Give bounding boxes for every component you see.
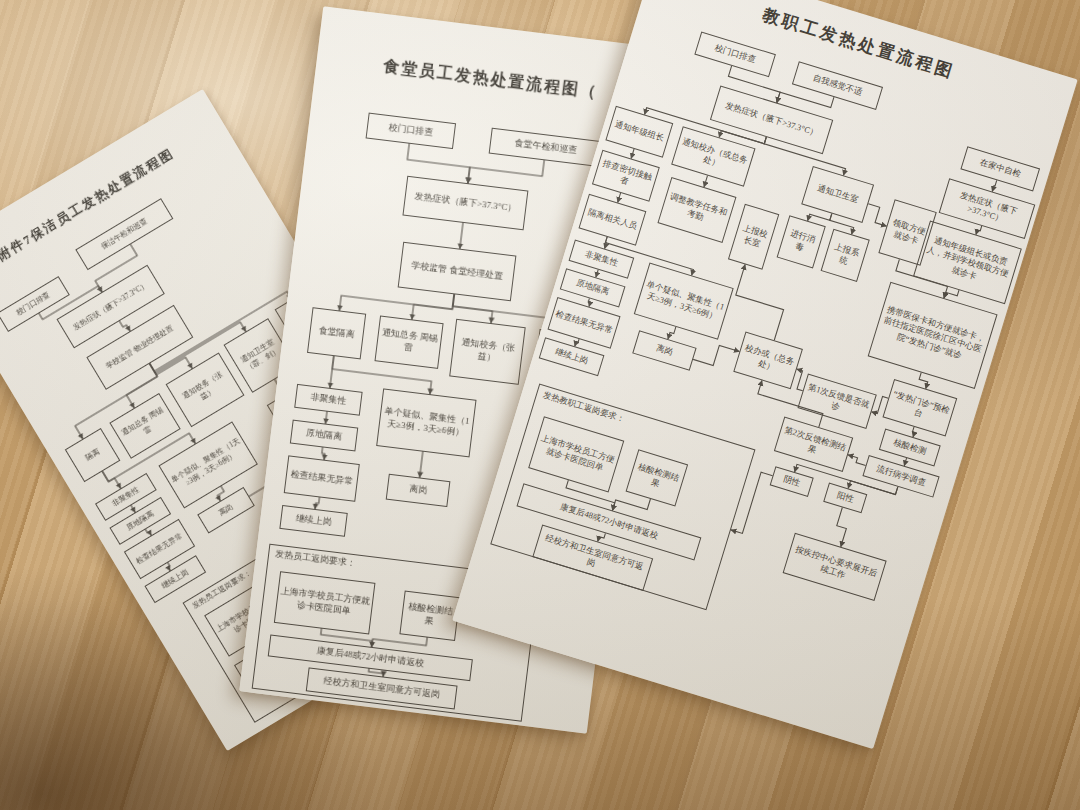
faculty-staff-node-leave-post: 离岗: [632, 330, 696, 370]
faculty-staff-node-notify-office: 通知校办（或总务处）: [671, 126, 755, 186]
canteen-staff-node-notify-school: 通知校务（张益）: [449, 319, 526, 385]
faculty-staff-node-suspect-cluster: 单个疑似、聚集性（1天≥3例，3天≥6例）: [634, 262, 734, 339]
canteen-staff-node-check-normal: 检查结果无异常: [284, 455, 360, 501]
faculty-staff-node-self-check: 自我感觉不适: [792, 61, 883, 110]
canteen-staff-node-suspect-cluster: 单个疑似、聚集性（1天≥3例，3天≥6例）: [376, 388, 476, 457]
faculty-staff-node-positive: 阳性: [823, 483, 867, 514]
canteen-staff-node-notify-general: 通知总务 周锡雷: [374, 315, 443, 368]
faculty-staff-node-follow-cdc: 按疾控中心要求展开后续工作: [783, 533, 887, 601]
canteen-staff-node-isolate-in-place: 原地隔离: [290, 420, 358, 452]
faculty-staff-node-report-principal: 上报校长室: [728, 204, 779, 270]
faculty-staff-node-isolate-related: 隔离相关人员: [578, 194, 646, 246]
canteen-staff-node-lunch-patrol: 食堂午检和巡查: [489, 128, 603, 167]
faculty-staff-node-school-office: 校办或（总务处）: [733, 332, 803, 390]
faculty-staff-node-notify-grade: 通知年级组长: [605, 106, 673, 158]
faculty-staff-node-disinfect: 进行消毒: [777, 215, 826, 268]
faculty-staff-node-adjust-teaching: 调整教学任务和考勤: [657, 177, 736, 243]
faculty-staff-node-check-contacts: 排查密切接触者: [592, 150, 660, 202]
faculty-staff-node-report-system: 上报系统: [821, 229, 870, 282]
faculty-staff-node-feedback1: 第1次反馈是否就诊: [797, 374, 876, 429]
canteen-staff-node-fever: 发热症状（腋下>37.3°C）: [402, 176, 528, 231]
cleaning-staff-node-isolate: 隔离: [65, 428, 121, 482]
canteen-staff-node-leave-post: 离岗: [386, 474, 451, 507]
canteen-staff-node-test-result: 核酸检测结果: [399, 591, 460, 641]
canteen-staff-node-continue-work: 继续上岗: [279, 505, 347, 537]
faculty-staff-node-feedback2: 第2次反馈检测结果: [774, 417, 853, 472]
canteen-staff-node-non-cluster: 非聚集性: [294, 384, 362, 416]
canteen-staff-node-canteen-isolate: 食堂隔离: [307, 307, 366, 359]
faculty-staff-node-notify-clinic: 通知卫生室: [801, 166, 874, 223]
cleaning-staff-node-notify-general: 通知总务 周锡雷: [109, 393, 180, 459]
faculty-staff-node-negative: 阴性: [770, 466, 814, 497]
faculty-staff-node-go-hospital: 携带医保卡和方便就诊卡，前往指定医院徐汇区中心医院“发热门诊”就诊: [868, 282, 998, 389]
cleaning-staff-node-notify-school: 通知校务（张益）: [166, 352, 245, 427]
canteen-staff-group-label: 发热员工返岗要求：: [274, 549, 356, 570]
canteen-staff-node-gate: 校门口排查: [366, 113, 457, 150]
faculty-staff-node-gate: 校门口排查: [694, 31, 776, 77]
canteen-staff-node-manage: 学校监管 食堂经理处置: [398, 242, 517, 302]
photo-scene: 附件7保洁员工发热处置流程图 校门口排查保洁午检和巡查发热症状（腋下>37.3°…: [0, 0, 1080, 810]
faculty-staff-node-fever-clinic: “发热门诊”预检台: [882, 379, 957, 437]
